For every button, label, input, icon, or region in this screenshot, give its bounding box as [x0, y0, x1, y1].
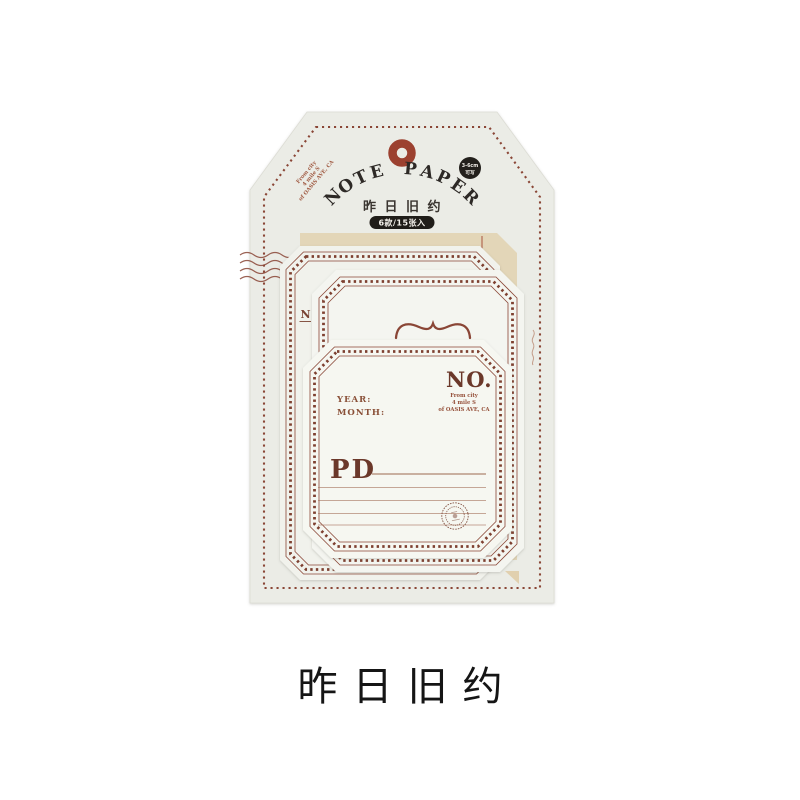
- no-label: NO.: [446, 367, 493, 392]
- count-badge-label: 6款/15张入: [378, 218, 425, 228]
- no-sub-line2: 4 mile S: [452, 400, 476, 406]
- note-card-front: YEAR: MONTH: NO. From city 4 mile S of O…: [303, 340, 512, 558]
- count-badge: 6款/15张入: [370, 216, 435, 229]
- no-sub-line1: From city: [450, 393, 479, 399]
- round-badge-line2: 可写: [465, 169, 475, 176]
- caption-text: 昨日旧约: [0, 654, 800, 712]
- pd-label: PD: [330, 455, 376, 485]
- brand-title-letter: P: [403, 159, 418, 180]
- round-badge: 3-6cm 可写: [459, 157, 481, 179]
- no-sub-line3: of OASIS AVE, CA: [438, 407, 490, 413]
- round-badge-line1: 3-6cm: [462, 163, 479, 169]
- month-label: MONTH:: [337, 408, 385, 418]
- card-back-letter: N: [301, 308, 311, 321]
- tag-subtitle: 昨日旧约: [363, 199, 449, 215]
- product-photo: 3-6cm 可写 From city 4 mile S of OASIS AVE…: [0, 0, 800, 800]
- year-label: YEAR:: [336, 395, 371, 405]
